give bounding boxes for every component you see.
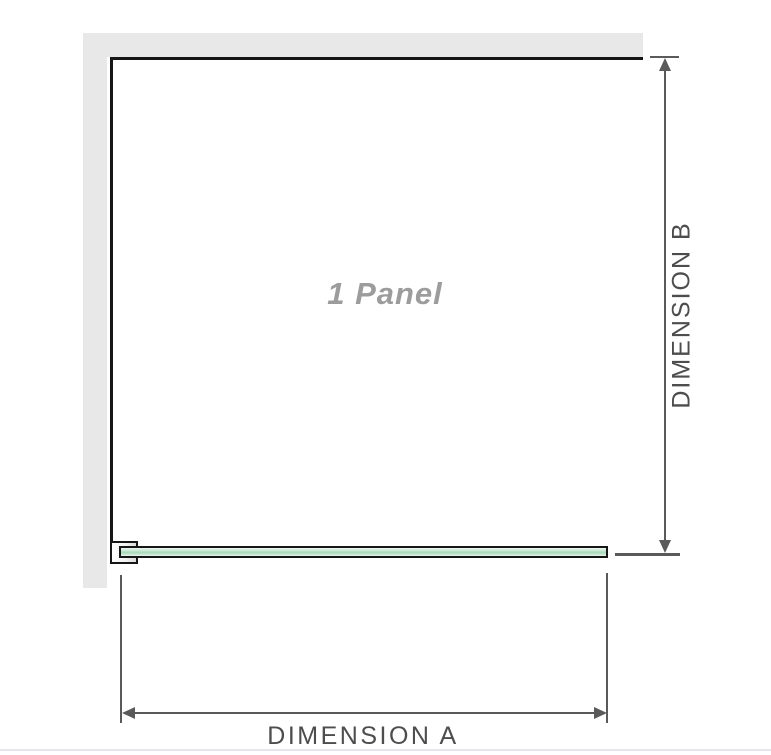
- dimension-a-extension-line-left: [120, 575, 122, 723]
- panel-left-edge-line: [110, 57, 113, 541]
- dimension-b-bottom-tick: [615, 553, 680, 556]
- glass-panel-plan-view: [119, 546, 608, 558]
- dimension-a-extension-line-right: [606, 573, 608, 723]
- page-bottom-divider: [0, 749, 771, 751]
- dimension-b-label: DIMENSION B: [668, 221, 697, 408]
- wall-left-band: [83, 33, 107, 588]
- wall-top-band: [83, 33, 643, 57]
- panel-count-label: 1 Panel: [300, 276, 470, 312]
- dimension-a-line: [134, 712, 595, 714]
- panel-top-edge-line: [110, 57, 643, 60]
- dimension-a-label: DIMENSION A: [243, 722, 483, 751]
- arrow-down-icon: [659, 540, 671, 553]
- arrow-right-icon: [594, 707, 607, 719]
- dimension-b-line: [664, 70, 666, 541]
- shower-panel-diagram: 1 Panel DIMENSION B DIMENSION A: [0, 0, 771, 755]
